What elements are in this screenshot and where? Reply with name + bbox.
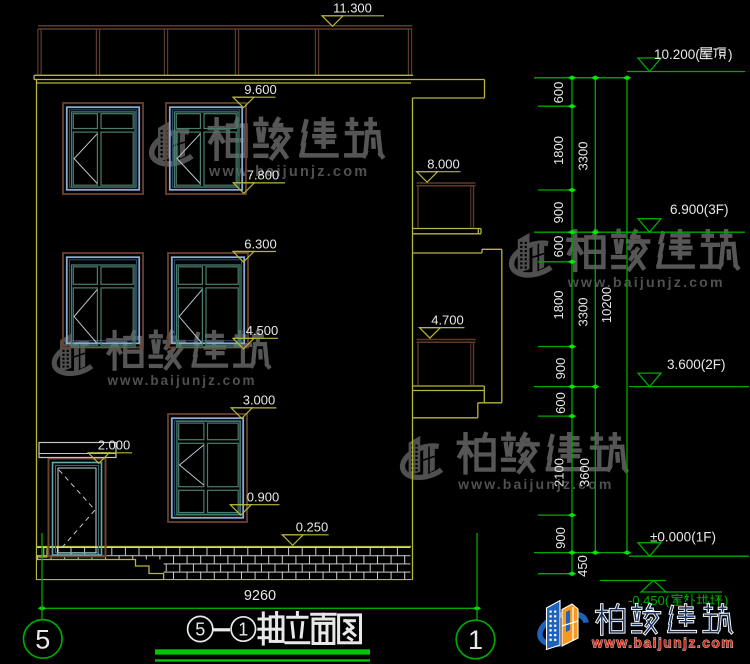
svg-text:4.700: 4.700 [431,312,464,327]
svg-text:1800: 1800 [551,291,566,320]
svg-text:11.300: 11.300 [333,1,372,16]
svg-text:8.000: 8.000 [427,157,460,172]
svg-text:1: 1 [468,625,483,655]
svg-text:3600: 3600 [577,458,592,487]
svg-text:2100: 2100 [552,458,567,487]
svg-text:900: 900 [553,527,568,549]
svg-text:5: 5 [195,620,205,640]
svg-text:4.500: 4.500 [246,323,279,338]
svg-text:0.250: 0.250 [296,520,329,535]
svg-text:600: 600 [551,82,566,104]
svg-text:10.200(: 10.200( [654,47,700,62]
svg-text:www.baijunjz.com: www.baijunjz.com [208,164,369,180]
svg-text:): ) [724,593,728,608]
svg-text:600: 600 [553,392,568,414]
svg-text:450: 450 [575,555,590,577]
svg-text:600: 600 [551,236,566,258]
svg-text:900: 900 [553,358,568,380]
svg-text:0.900: 0.900 [247,490,280,505]
svg-text:9.600: 9.600 [244,82,277,97]
svg-text:6.900(3F): 6.900(3F) [670,202,729,217]
svg-text:6.300: 6.300 [244,236,277,251]
svg-text:): ) [728,47,733,62]
svg-text:±0.000(1F): ±0.000(1F) [650,530,716,545]
svg-text:www.baijunjz.com: www.baijunjz.com [567,275,725,291]
svg-text:5: 5 [35,625,50,655]
svg-text:1800: 1800 [551,136,566,165]
svg-text:3.600(2F): 3.600(2F) [667,357,726,372]
svg-text:3.000: 3.000 [243,393,276,408]
svg-text:3300: 3300 [576,142,591,171]
svg-text:1: 1 [238,620,248,640]
svg-text:2.000: 2.000 [98,438,131,453]
svg-text:10200: 10200 [599,287,614,323]
svg-text:www.baijunjz.com: www.baijunjz.com [591,636,735,651]
svg-text:7.800: 7.800 [247,168,280,183]
svg-text:900: 900 [551,202,566,224]
svg-text:3300: 3300 [576,298,591,327]
svg-text:9260: 9260 [244,588,276,604]
svg-text:www.baijunjz.com: www.baijunjz.com [107,373,257,388]
